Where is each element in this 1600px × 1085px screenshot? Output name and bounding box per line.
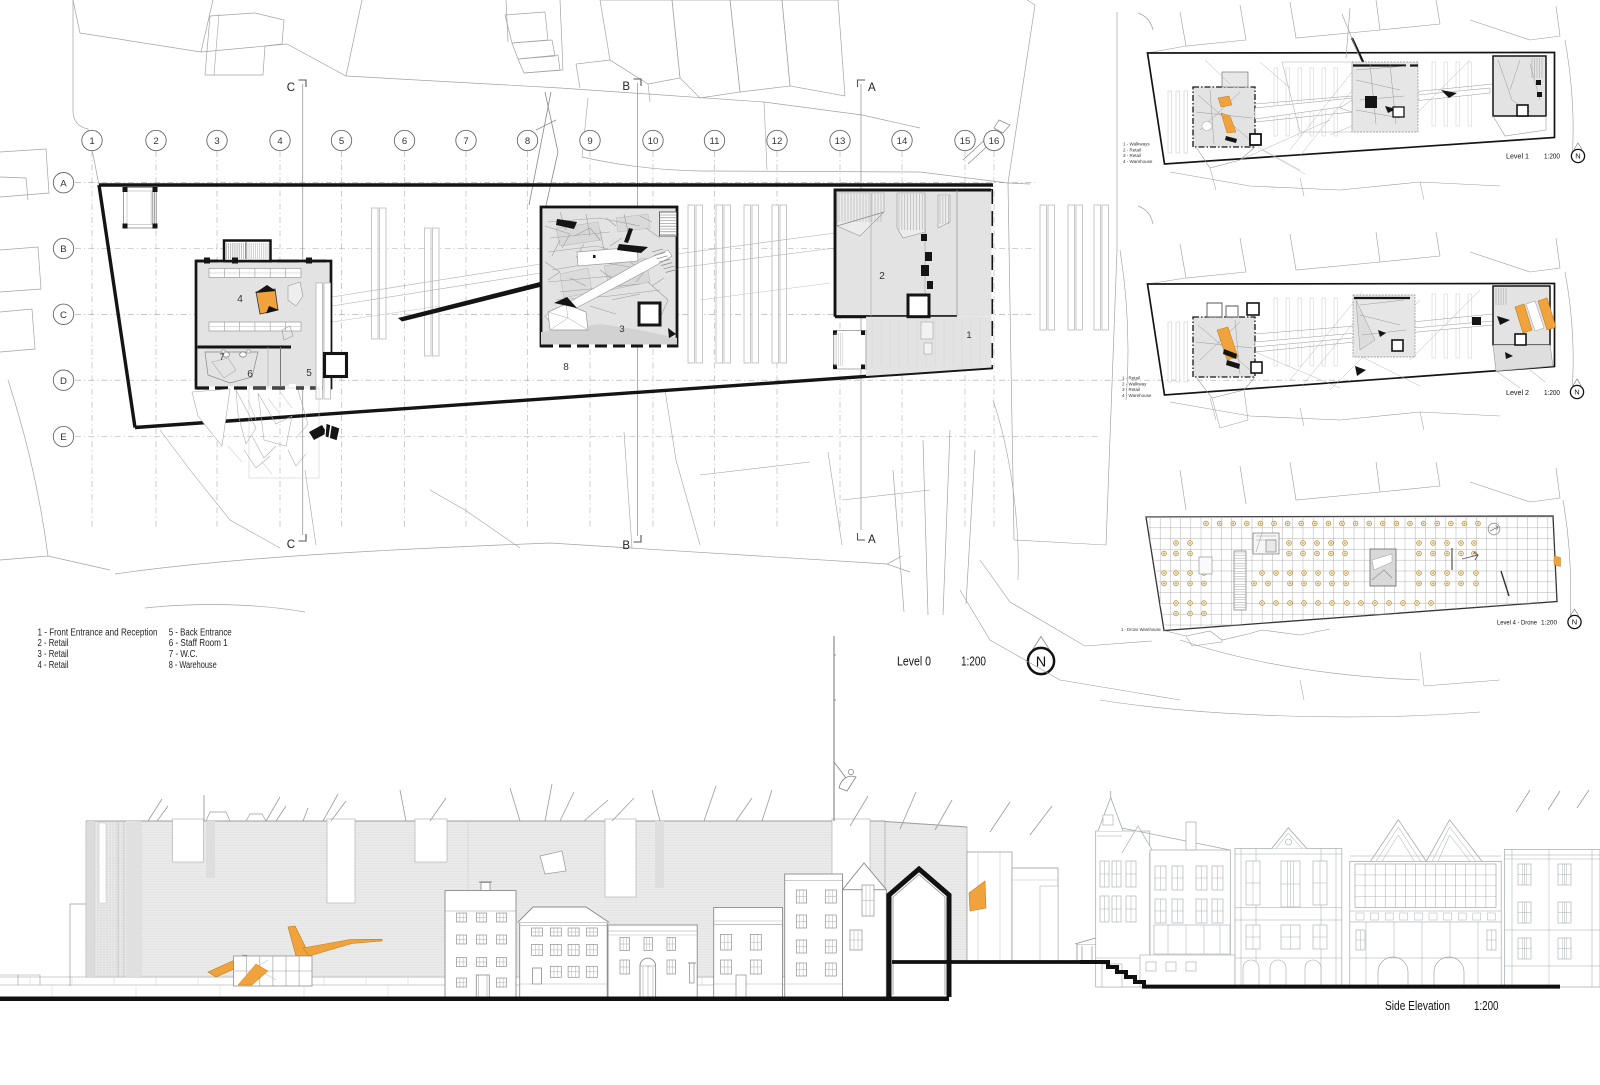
svg-text:D: D — [60, 376, 67, 387]
svg-text:1:200: 1:200 — [1544, 154, 1560, 161]
svg-text:Level 4 - Drone: Level 4 - Drone — [1497, 620, 1537, 627]
svg-text:2: 2 — [153, 136, 158, 147]
svg-text:E: E — [60, 432, 66, 443]
svg-text:N: N — [1574, 388, 1579, 397]
svg-text:2 - Retail: 2 - Retail — [1123, 147, 1141, 152]
svg-text:2: 2 — [879, 271, 885, 282]
svg-text:B: B — [60, 244, 66, 255]
svg-text:13: 13 — [835, 136, 846, 147]
svg-text:N: N — [1575, 152, 1580, 161]
svg-text:A: A — [868, 82, 876, 94]
svg-text:A: A — [60, 178, 67, 189]
svg-text:N: N — [1572, 618, 1577, 627]
svg-text:1:200: 1:200 — [1541, 620, 1557, 627]
svg-text:1 - Front Entrance and Recepti: 1 - Front Entrance and Reception — [38, 627, 158, 638]
svg-text:1 - Drone Warehouse: 1 - Drone Warehouse — [1121, 627, 1162, 632]
svg-text:8 - Warehouse: 8 - Warehouse — [169, 660, 217, 671]
svg-text:3 - Retail: 3 - Retail — [1122, 387, 1140, 392]
svg-text:3: 3 — [619, 324, 624, 335]
svg-text:C: C — [287, 539, 295, 551]
svg-text:2 - Retail: 2 - Retail — [38, 638, 69, 649]
svg-text:6: 6 — [402, 136, 407, 147]
svg-text:1:200: 1:200 — [961, 654, 986, 669]
svg-text:1: 1 — [966, 330, 971, 341]
svg-text:6: 6 — [247, 369, 253, 380]
svg-text:C: C — [287, 82, 295, 94]
svg-text:1 - Walkways: 1 - Walkways — [1123, 142, 1150, 147]
svg-text:3: 3 — [214, 136, 219, 147]
svg-text:4 - Warehouse: 4 - Warehouse — [1123, 159, 1153, 164]
svg-text:4 - Retail: 4 - Retail — [38, 660, 69, 671]
svg-text:1:200: 1:200 — [1474, 998, 1499, 1013]
svg-text:A: A — [868, 534, 876, 546]
svg-text:Side Elevation: Side Elevation — [1385, 998, 1450, 1013]
svg-text:Level 0: Level 0 — [897, 654, 931, 669]
svg-text:Level 1: Level 1 — [1506, 154, 1529, 161]
svg-text:15: 15 — [960, 136, 971, 147]
svg-text:C: C — [60, 310, 67, 321]
svg-text:12: 12 — [772, 136, 783, 147]
svg-text:5 - Back Entrance: 5 - Back Entrance — [169, 627, 232, 638]
svg-text:6 - Staff Room 1: 6 - Staff Room 1 — [169, 638, 228, 649]
svg-text:5: 5 — [306, 368, 312, 379]
svg-text:3 - Retail: 3 - Retail — [38, 649, 69, 660]
svg-text:1: 1 — [89, 136, 94, 147]
svg-text:14: 14 — [897, 136, 908, 147]
svg-text:7 - W.C.: 7 - W.C. — [169, 649, 198, 660]
svg-text:7: 7 — [219, 352, 224, 363]
svg-text:11: 11 — [710, 136, 720, 147]
svg-text:4: 4 — [277, 136, 283, 147]
svg-text:2 - Walkway: 2 - Walkway — [1122, 381, 1147, 386]
svg-text:4 - Warehouse: 4 - Warehouse — [1122, 393, 1152, 398]
svg-text:8: 8 — [563, 362, 569, 373]
svg-text:1:200: 1:200 — [1544, 390, 1560, 397]
svg-text:8: 8 — [525, 136, 530, 147]
svg-text:3 - Retail: 3 - Retail — [1123, 153, 1141, 158]
svg-text:10: 10 — [648, 136, 659, 147]
svg-text:N: N — [1036, 654, 1046, 670]
svg-text:Level 2: Level 2 — [1506, 390, 1529, 397]
svg-text:1 - Retail: 1 - Retail — [1122, 376, 1140, 381]
svg-text:7: 7 — [463, 136, 468, 147]
svg-text:4: 4 — [237, 294, 243, 305]
svg-text:5: 5 — [339, 136, 344, 147]
svg-text:B: B — [622, 81, 630, 93]
svg-text:16: 16 — [989, 136, 1000, 147]
svg-text:9: 9 — [587, 136, 592, 147]
svg-text:B: B — [622, 540, 630, 552]
